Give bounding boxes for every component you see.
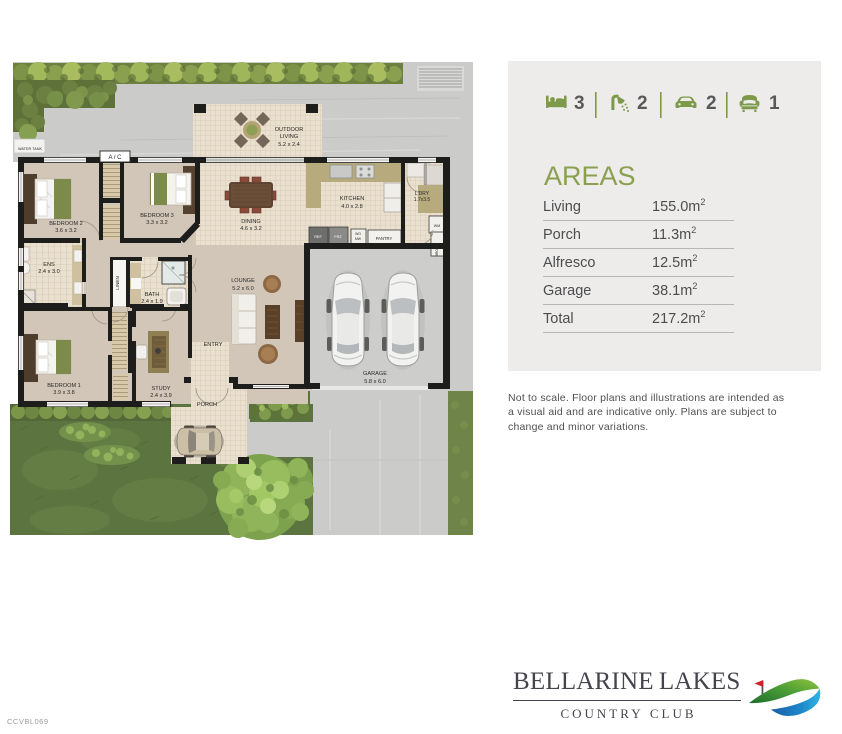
svg-text:FRZ: FRZ xyxy=(334,235,342,239)
svg-text:5.8 x 6.0: 5.8 x 6.0 xyxy=(364,379,385,385)
svg-text:2: 2 xyxy=(706,93,717,114)
svg-text:OUTDOOR: OUTDOOR xyxy=(275,127,304,133)
svg-text:WO: WO xyxy=(355,232,361,236)
svg-text:2: 2 xyxy=(637,93,648,114)
svg-text:1: 1 xyxy=(769,93,780,114)
svg-text:4.6 x 3.2: 4.6 x 3.2 xyxy=(240,226,261,232)
svg-text:ENS: ENS xyxy=(43,262,55,268)
svg-text:2.4 x 3.0: 2.4 x 3.0 xyxy=(38,269,59,275)
svg-text:WM: WM xyxy=(434,224,440,228)
svg-text:BEDROOM 3: BEDROOM 3 xyxy=(140,213,174,219)
svg-text:BATH: BATH xyxy=(145,292,160,298)
svg-text:3.9 x 3.8: 3.9 x 3.8 xyxy=(53,390,74,396)
svg-text:4.0 x 2.8: 4.0 x 2.8 xyxy=(341,204,362,210)
svg-text:MW: MW xyxy=(355,237,362,241)
svg-text:LINEN: LINEN xyxy=(115,276,120,290)
svg-text:5.2 x 2.4: 5.2 x 2.4 xyxy=(278,142,299,148)
svg-text:GARAGE: GARAGE xyxy=(363,371,387,377)
svg-text:BROOM: BROOM xyxy=(435,243,439,256)
svg-text:STUDY: STUDY xyxy=(152,386,171,392)
svg-text:5.2 x 6.0: 5.2 x 6.0 xyxy=(232,286,253,292)
svg-text:BEDROOM 1: BEDROOM 1 xyxy=(47,383,81,389)
svg-text:REF: REF xyxy=(314,235,322,239)
svg-text:3: 3 xyxy=(574,93,585,114)
svg-text:PANTRY: PANTRY xyxy=(376,236,393,241)
svg-text:3.6 x 3.2: 3.6 x 3.2 xyxy=(55,228,76,234)
svg-text:LOUNGE: LOUNGE xyxy=(231,278,255,284)
svg-text:WATER TANK: WATER TANK xyxy=(18,147,43,151)
svg-text:BEDROOM 2: BEDROOM 2 xyxy=(49,221,83,227)
svg-text:2.4 x 1.9: 2.4 x 1.9 xyxy=(141,299,162,305)
svg-text:3.3 x 3.2: 3.3 x 3.2 xyxy=(146,220,167,226)
svg-text:PORCH: PORCH xyxy=(197,402,217,408)
svg-text:1.7x3.5: 1.7x3.5 xyxy=(414,197,431,203)
svg-text:2.4 x 3.9: 2.4 x 3.9 xyxy=(150,393,171,399)
svg-text:ENTRY: ENTRY xyxy=(204,342,223,348)
svg-text:LIVING: LIVING xyxy=(280,134,298,140)
svg-text:A / C: A / C xyxy=(108,155,122,161)
svg-text:DINING: DINING xyxy=(241,219,261,225)
svg-text:KITCHEN: KITCHEN xyxy=(340,196,365,202)
